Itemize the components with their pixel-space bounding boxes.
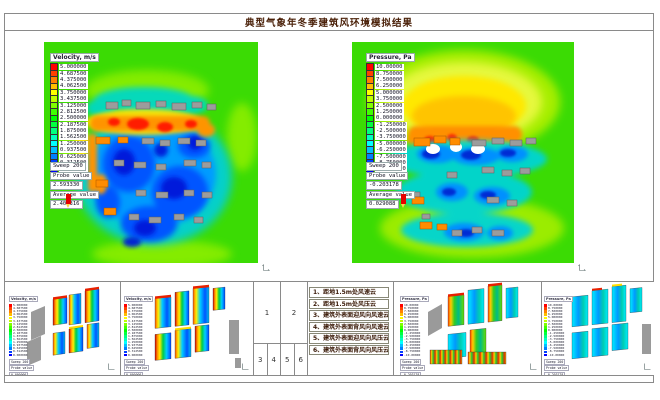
colorbar-value: 1.875000 — [59, 128, 88, 134]
colorbar-value: -7.500000 — [375, 154, 407, 160]
sweep-label: Sweep 200 — [124, 359, 145, 365]
legend-title: Velocity, m/s — [9, 296, 38, 302]
colorbar-value: 7.500000 — [375, 77, 404, 83]
mini-velocity-legend: Velocity, m/s 5.0000004.6875004.3750004.… — [124, 285, 153, 375]
pressure-plot-info: Sweep 200 Probe value -0.203178 Average … — [366, 162, 415, 210]
layout-key-cell: 4 — [268, 344, 282, 375]
sweep-label: Sweep 200 — [9, 359, 30, 365]
mini-colorbar: 5.0000004.6875004.3750004.0625003.750000… — [124, 304, 153, 357]
colorbar-value: -10.00000 — [548, 354, 564, 357]
probe-value: -0.203178 — [366, 181, 402, 190]
average-label: Average value — [366, 191, 415, 200]
probe-value: -0.203178 — [544, 372, 565, 375]
bottom-row-bottom-border — [4, 375, 654, 376]
average-label: Average value — [50, 191, 99, 200]
figure-definition-item: 3、建筑外表面迎风向风速云 — [309, 310, 389, 321]
panel-velocity-windward: Velocity, m/s 5.0000004.6875004.3750004.… — [5, 282, 119, 375]
colorbar-value: 1.562500 — [59, 134, 88, 140]
layout-key-cell: 5 — [281, 344, 295, 375]
probe-label: Probe value — [544, 365, 569, 371]
probe-value: -0.203178 — [400, 372, 421, 375]
mini-colorbar: 5.0000004.6875004.3750004.0625003.750000… — [9, 304, 38, 357]
colorbar-value: 2.812500 — [59, 109, 88, 115]
colorbar-value: 0.000000 — [375, 115, 404, 121]
axis-triad-icon — [643, 362, 652, 371]
velocity-legend: Velocity, m/s 5.0000004.6875004.3750004.… — [50, 44, 99, 178]
layout-key-cell: 2 — [281, 282, 307, 343]
figure-definition-item: 2、距地1.5m处风压云 — [309, 299, 389, 310]
probe-label: Probe value — [9, 365, 34, 371]
plot-pressure-plan: Pressure, Pa 10.000008.7500007.5000006.2… — [352, 42, 574, 263]
axis-triad-icon — [578, 263, 587, 272]
colorbar-value: 4.687500 — [59, 71, 88, 77]
layout-key-cell: 3 — [254, 344, 268, 375]
legend-title: Velocity, m/s — [124, 296, 153, 302]
colorbar-value: 4.062500 — [59, 83, 88, 89]
figure-definition-item: 1、距地1.5m处风速云 — [309, 287, 389, 298]
panel-velocity-leeward: Velocity, m/s 5.0000004.6875004.3750004.… — [121, 282, 253, 375]
figure-definition-item: 6、建筑外表面背风向风压云 — [309, 345, 389, 356]
colorbar-swatch — [9, 354, 12, 357]
colorbar-swatch — [400, 354, 403, 357]
legend-title: Pressure, Pa — [400, 296, 429, 302]
colorbar-value: 3.750000 — [59, 90, 88, 96]
colorbar-value: 8.750000 — [375, 71, 404, 77]
colorbar-value: -2.500000 — [375, 128, 407, 134]
mini-pressure-legend: Pressure, Pa 10.000008.7500007.5000006.2… — [544, 285, 573, 375]
probe-label: Probe value — [124, 365, 149, 371]
colorbar-value: 2.187500 — [59, 122, 88, 128]
colorbar-value: 3.750000 — [375, 96, 404, 102]
axis-triad-icon — [241, 362, 250, 371]
axis-triad-icon — [262, 263, 271, 272]
colorbar-value: 0.937500 — [59, 147, 88, 153]
layout-key-row-top: 12 — [254, 282, 307, 344]
velocity-plot-info: Sweep 200 Probe value 2.593330 Average v… — [50, 162, 99, 210]
colorbar-swatch — [544, 354, 547, 357]
panel-pressure-windward: Pressure, Pa 10.000008.7500007.5000006.2… — [394, 282, 541, 375]
average-value: 0.029088 — [366, 200, 399, 209]
layout-key-cell: 6 — [295, 344, 308, 375]
sweep-label: Sweep 200 — [50, 162, 86, 171]
probe-marker — [66, 194, 71, 204]
colorbar-value: -1.250000 — [375, 122, 407, 128]
probe-marker — [401, 194, 406, 204]
colorbar-value: 2.500000 — [375, 103, 404, 109]
panel-divider — [541, 281, 542, 375]
sweep-label: Sweep 200 — [400, 359, 421, 365]
colorbar-value: 0.000000 — [128, 354, 142, 357]
probe-label: Probe value — [50, 172, 92, 181]
probe-value: 0.000000 — [9, 372, 28, 375]
colorbar-value: -5.000000 — [375, 141, 407, 147]
sweep-label: Sweep 200 — [366, 162, 402, 171]
colorbar-swatch — [124, 354, 127, 357]
axis-triad-icon — [107, 362, 116, 371]
colorbar-value: 0.000000 — [13, 354, 27, 357]
colorbar-value: 0.625000 — [59, 154, 88, 160]
panel-divider — [120, 281, 121, 375]
colorbar-value: 6.250000 — [375, 83, 404, 89]
colorbar-value: 1.250000 — [375, 109, 404, 115]
mini-colorbar: 10.000008.7500007.5000006.2500005.000000… — [544, 304, 573, 357]
page-title: 典型气象年冬季建筑风环境模拟结果 — [4, 13, 654, 31]
panel-pressure-leeward: Pressure, Pa 10.000008.7500007.5000006.2… — [542, 282, 655, 375]
layout-key-row-bottom: 3456 — [254, 344, 307, 375]
colorbar-value: 3.437500 — [59, 96, 88, 102]
layout-key-table: 12 3456 — [254, 282, 307, 375]
plot-velocity-plan: Velocity, m/s 5.0000004.6875004.3750004.… — [44, 42, 258, 263]
colorbar-value: 2.500000 — [59, 115, 88, 121]
bottom-row-top-border — [4, 281, 654, 282]
legend-title: Velocity, m/s — [50, 53, 99, 62]
figure-definition-item: 4、建筑外表面背风向风速云 — [309, 322, 389, 333]
colorbar: 10.000008.7500007.5000006.2500005.000000… — [366, 64, 415, 173]
panel-divider — [393, 281, 394, 375]
colorbar: 5.0000004.6875004.3750004.0625003.750000… — [50, 64, 99, 173]
colorbar-value: 3.125000 — [59, 103, 88, 109]
probe-value: 0.000000 — [124, 372, 143, 375]
colorbar-value: 4.375000 — [59, 77, 88, 83]
colorbar-value: -6.250000 — [375, 147, 407, 153]
mini-velocity-legend: Velocity, m/s 5.0000004.6875004.3750004.… — [9, 285, 38, 375]
mini-pressure-legend: Pressure, Pa 10.000008.7500007.5000006.2… — [400, 285, 429, 375]
legend-title: Pressure, Pa — [366, 53, 415, 62]
mini-colorbar: 10.000008.7500007.5000006.2500005.000000… — [400, 304, 429, 357]
colorbar-value: -10.00000 — [404, 354, 420, 357]
panel-divider — [307, 281, 308, 375]
figure-definition-item: 5、建筑外表面迎风向风压云 — [309, 333, 389, 344]
probe-label: Probe value — [366, 172, 408, 181]
colorbar-value: -3.750000 — [375, 134, 407, 140]
probe-value: 2.593330 — [50, 181, 83, 190]
colorbar-value: 1.250000 — [59, 141, 88, 147]
pressure-legend: Pressure, Pa 10.000008.7500007.5000006.2… — [366, 44, 415, 178]
probe-label: Probe value — [400, 365, 425, 371]
colorbar-value: 5.000000 — [375, 90, 404, 96]
axis-triad-icon — [529, 362, 538, 371]
sweep-label: Sweep 200 — [544, 359, 565, 365]
colorbar-value: 10.00000 — [375, 64, 404, 70]
figure-definitions-list: 1、距地1.5m处风速云2、距地1.5m处风压云3、建筑外表面迎风向风速云4、建… — [309, 287, 389, 356]
layout-key-cell: 1 — [254, 282, 281, 343]
colorbar-value: 5.000000 — [59, 64, 88, 70]
legend-title: Pressure, Pa — [544, 296, 573, 302]
